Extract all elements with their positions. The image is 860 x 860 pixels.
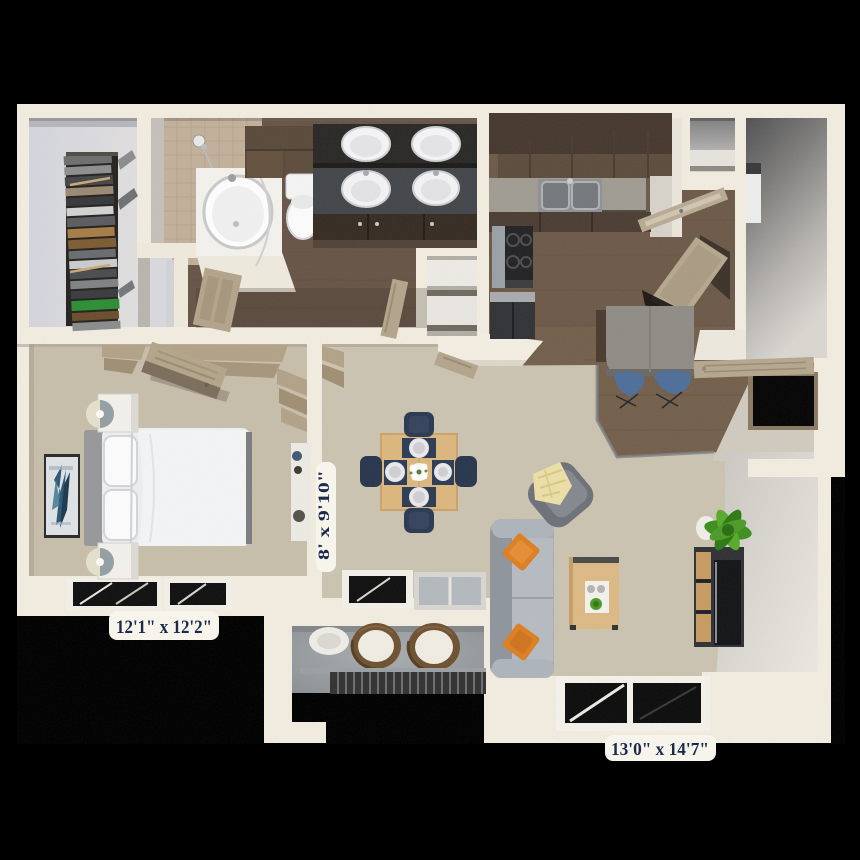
svg-text:13'0" x 14'7": 13'0" x 14'7" [611, 739, 709, 759]
svg-text:12'1" x 12'2": 12'1" x 12'2" [116, 617, 212, 638]
svg-text:8' x 9'10": 8' x 9'10" [316, 470, 333, 560]
